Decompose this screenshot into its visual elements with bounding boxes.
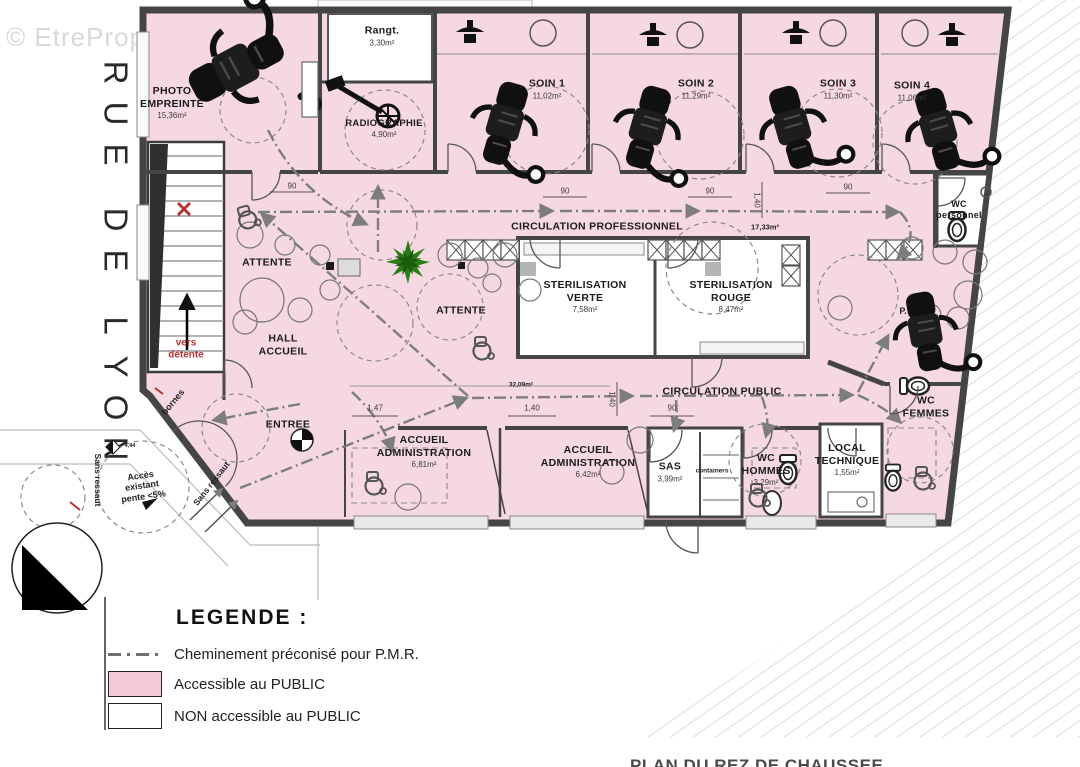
legend-item-non-public: NON accessible au PUBLIC	[108, 702, 361, 730]
legend-item-public: Accessible au PUBLIC	[108, 670, 325, 698]
plan-caption: PLAN DU REZ DE CHAUSSEE	[630, 756, 890, 767]
legend-item-pmr-label: Cheminement préconisé pour P.M.R.	[174, 646, 419, 663]
legend-item-public-label: Accessible au PUBLIC	[174, 676, 325, 693]
pmr-line-swatch	[108, 653, 174, 656]
floor-plan-page: © EtreProprio.com RUEDELYON	[0, 0, 1080, 767]
non-public-swatch	[108, 703, 162, 729]
legend-item-non-public-label: NON accessible au PUBLIC	[174, 708, 361, 725]
legend: LEGENDE : Cheminement préconisé pour P.M…	[108, 598, 528, 738]
orientation-symbol	[12, 523, 102, 613]
legend-item-pmr: Cheminement préconisé pour P.M.R.	[108, 640, 419, 668]
public-pink-swatch	[108, 671, 162, 697]
desk	[302, 62, 318, 117]
legend-title: LEGENDE :	[176, 606, 308, 630]
